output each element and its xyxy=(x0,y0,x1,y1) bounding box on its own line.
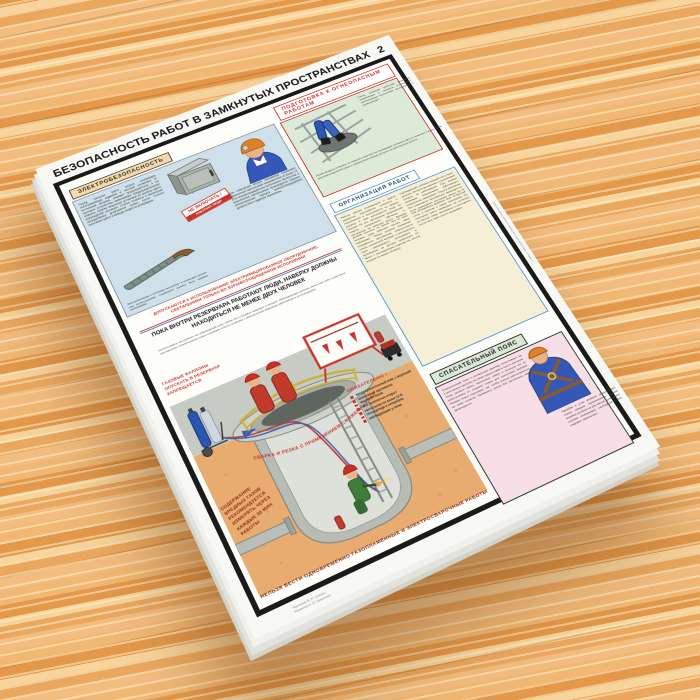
wooden-table-background: БЕЗОПАСНОСТЬ РАБОТ В ЗАМКНУТЫХ ПРОСТРАНС… xyxy=(0,0,700,700)
safety-poster-board: БЕЗОПАСНОСТЬ РАБОТ В ЗАМКНУТЫХ ПРОСТРАНС… xyxy=(35,35,660,639)
